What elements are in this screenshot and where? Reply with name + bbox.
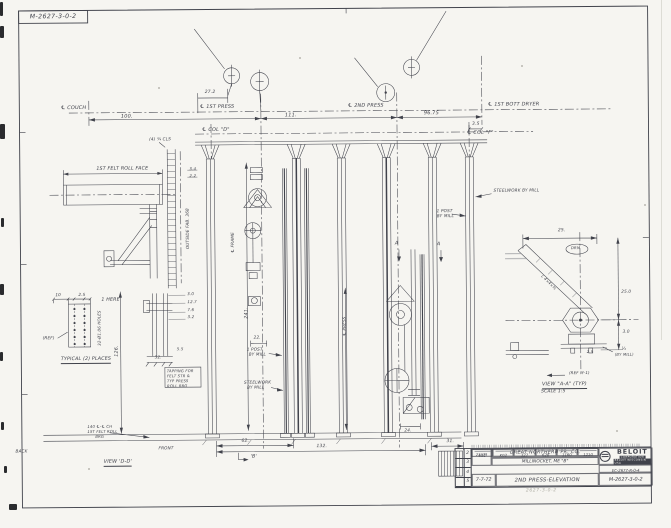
logo-wordmark: BELOIT	[617, 448, 648, 456]
annotation-cc-3: BRG	[95, 435, 104, 439]
annotation-typical: TYPICAL (2) PLACES	[61, 357, 111, 364]
beloit-logo: BELOIT CORPORATION BELOIT WISCONSIN USA	[599, 448, 653, 465]
scan-speck	[1, 218, 4, 227]
drawing-date: 7-7-72	[472, 474, 496, 487]
columns-group	[195, 140, 489, 438]
annotation-front: FRONT	[158, 446, 173, 451]
beloit-logo-text: BELOIT CORPORATION BELOIT WISCONSIN USA	[613, 448, 652, 465]
annotation-cl-couch: ℄ COUCH	[61, 106, 87, 112]
revision-row: 2	[456, 449, 471, 459]
revision-desc-cell	[456, 458, 465, 467]
scan-speck	[0, 124, 5, 139]
revision-number: 5	[465, 477, 471, 486]
annotation-note-cls: (4) ¾ CLS	[149, 137, 171, 142]
annotation-cut-a-1: A	[395, 242, 399, 248]
revision-number: 3	[465, 458, 471, 467]
annotation-by-mill-aa: (BY MILL)	[615, 353, 634, 357]
annotation-felt-roll-face: 1ST FELT ROLL FACE	[96, 166, 148, 172]
order-cell: 1210	[577, 448, 598, 456]
scan-dust-dot	[158, 87, 160, 89]
annotation-here: 1 HERE	[101, 298, 120, 303]
paper-edge	[661, 0, 662, 340]
annotation-dim-25: 25.	[558, 229, 566, 234]
annotation-outside-fab: OUTSIDE FAB. 368	[186, 208, 191, 249]
annotation-dim-32: 32.	[155, 355, 162, 359]
annotation-cl-col-f: ℄ COL "F"	[467, 131, 494, 137]
annotation-dim-27-2: 27.2	[205, 91, 216, 96]
scan-speck	[0, 26, 4, 38]
annotation-dim-quarter: ¼	[622, 347, 626, 352]
beloit-globe-icon	[600, 451, 611, 462]
annotation-dim-62: 62.	[241, 440, 249, 445]
press2-group	[384, 249, 444, 429]
annotation-post-mill-r2: BY MILL	[437, 214, 454, 219]
revision-desc-cell	[456, 477, 465, 486]
title-block: 2345 23379 GREAT NORTHERN PR. CO. MILLIN…	[455, 447, 652, 489]
scan-speck	[4, 466, 7, 473]
annotation-dim-10: 10	[55, 293, 61, 298]
annotation-cl-col-d: ℄ COL "D"	[202, 128, 230, 134]
roll-bracket-group	[104, 204, 158, 278]
scan-speck	[0, 2, 3, 16]
annotation-dim-3-2: 3.2	[187, 315, 194, 319]
scan-dust-dot	[644, 204, 646, 206]
ladder-column-group	[159, 142, 181, 288]
revision-row: 3	[456, 458, 471, 468]
scan-speck	[9, 504, 17, 510]
revision-number: 2	[465, 449, 471, 458]
scan-dust-dot	[616, 430, 618, 432]
revision-number: 4	[465, 468, 471, 477]
annotation-ref: (REF)	[43, 336, 55, 341]
scan-dust-dot	[88, 468, 90, 470]
scan-dust-dot	[299, 57, 301, 59]
sheet-content: M-2627-3-0-2 ℄ COUCH100.℄ 1ST PRESS27.2℄…	[0, 0, 671, 528]
annotation-dim-126: 126.	[115, 345, 120, 356]
corner-drawing-number: M-2627-3-0-2	[30, 13, 77, 20]
annotation-dim-132: 132.	[316, 445, 327, 450]
revision-desc-cell	[456, 468, 465, 477]
scan-dust-dot	[521, 65, 523, 67]
annotation-dim-5-5: 5.5	[177, 347, 184, 351]
annotation-dim-241: 241.	[244, 307, 249, 318]
annotation-dim-2-5: 2.5	[78, 293, 85, 298]
annotation-cl-frame: ℄ FRAME	[231, 232, 236, 253]
annotation-scale: SCALE 1:5	[541, 390, 565, 395]
pencil-note: 2627-3-0-2	[526, 488, 557, 493]
annotation-dim-2-2: 2.2	[189, 174, 196, 178]
revision-desc-cell	[456, 449, 465, 458]
annotation-dim-3-0: 3.0	[187, 292, 194, 296]
annotation-dim-12-7: 12.7	[187, 300, 197, 304]
annotation-marker-b: 'B'	[251, 455, 257, 460]
annotation-dim-25-0: 25.0	[621, 290, 631, 295]
annotation-dim-96-75: 96.75	[424, 111, 439, 117]
annotation-cl-dryer: ℄ 1ST BOTT DRYER	[488, 102, 540, 108]
annotation-dim-7-6: 7.6	[187, 308, 194, 312]
annotation-drm: DRM	[571, 246, 580, 250]
annotation-cut-a-2: A	[437, 242, 441, 248]
order-cell: 1160	[556, 448, 577, 456]
annotation-dim-111: 111.	[285, 113, 297, 119]
leader-lines-group	[108, 194, 494, 439]
annotation-dim-22: 22.	[254, 336, 261, 341]
floor-group	[43, 432, 461, 446]
order-cells: 631K0232762811601210	[472, 448, 599, 457]
annotation-steel-by-mill-r: STEELWORK BY MILL	[493, 188, 539, 193]
annotation-back: BACK	[16, 449, 28, 454]
annotation-note-tap-4: ROLL BRG	[167, 384, 187, 388]
annotation-cl-press: ℄ PRESS	[342, 317, 347, 336]
order-cell: 628	[535, 448, 556, 456]
roll-balloons-group	[194, 11, 447, 111]
annotation-dim-2-5b: 2.5	[587, 350, 594, 354]
annotation-dim-3-4: 3.4	[189, 167, 196, 171]
annotation-steel-mill-l2: BY MILL	[247, 386, 264, 391]
revision-row: 5	[456, 477, 471, 487]
customer-location: MILLINOCKET, ME "B"	[492, 457, 599, 466]
annotation-cl-1st-press: ℄ 1ST PRESS	[200, 105, 235, 111]
annotation-post-mill-l2: BY MILL	[249, 353, 266, 358]
annotation-dim-31: 31.	[446, 440, 454, 445]
drawing-number: M-2627-3-0-2	[599, 473, 653, 486]
annotation-holes: 32-Ø1.06 HOLES	[97, 310, 102, 345]
scan-speck	[0, 352, 3, 361]
order-cell: K02	[493, 449, 514, 457]
scan-speck	[1, 422, 4, 430]
drawing-number-box: M-2627-3-0-2	[19, 10, 87, 24]
annotation-dim-3-0b: 3.0	[623, 330, 630, 335]
drawing-title: 2ND PRESS-ELEVATION	[496, 473, 599, 487]
annotation-cl-2nd-press: ℄ 2ND PRESS	[348, 104, 384, 110]
scan-speck	[0, 284, 4, 295]
annotation-dim-100: 100.	[121, 115, 133, 121]
revision-row: 4	[456, 468, 471, 478]
annotation-view-dd: VIEW 'D-D'	[104, 460, 132, 467]
annotation-dim-3-5: 3.5	[472, 123, 480, 128]
annotation-dim-24: 24.	[404, 428, 411, 433]
order-cell: 327	[514, 448, 535, 456]
revision-table: 2345	[456, 449, 472, 487]
title-block-main: 23379 GREAT NORTHERN PR. CO. MILLINOCKET…	[472, 448, 651, 487]
annotation-ref-m1: (REF M-1)	[569, 371, 590, 376]
order-cell: 631	[472, 449, 493, 457]
bolt-plate-detail-group	[52, 297, 91, 347]
